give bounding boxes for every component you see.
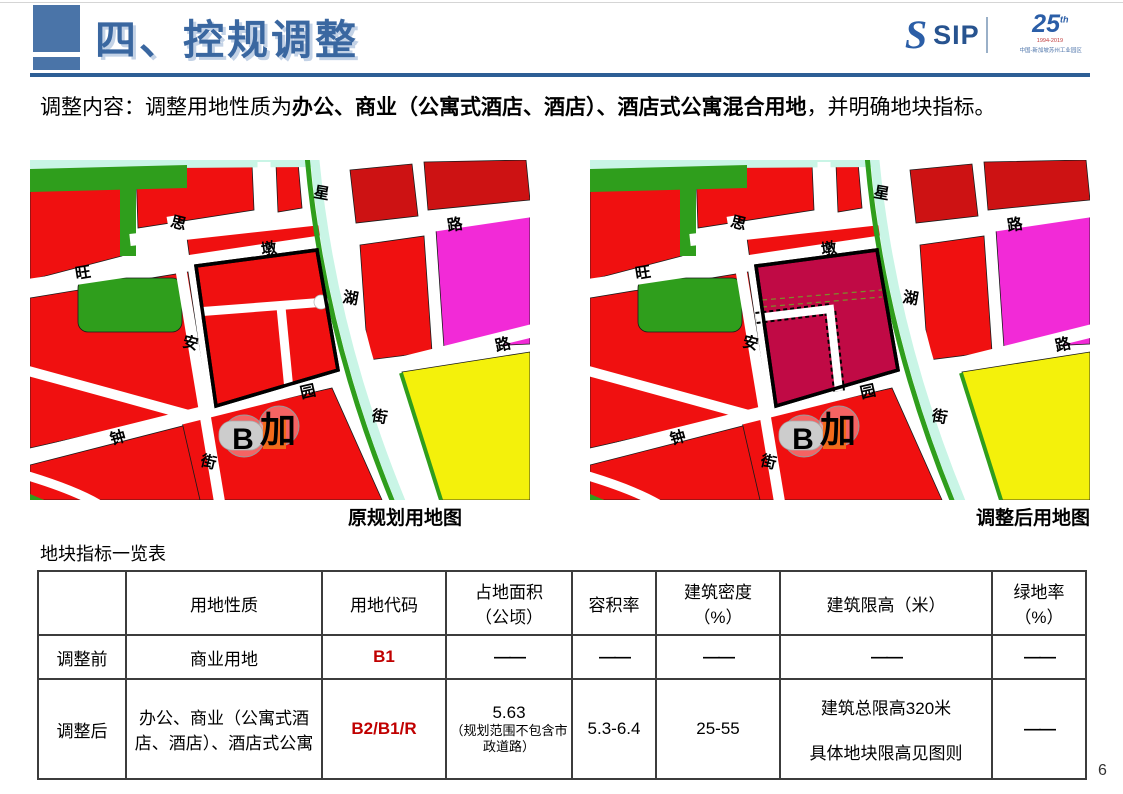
header-land-code: 用地代码 [322,571,446,635]
plot-indicator-table: 用地性质 用地代码 占地面积（公顷） 容积率 建筑密度（%） 建筑限高（米） 绿… [37,570,1087,780]
header-land-use: 用地性质 [126,571,322,635]
cell-density: 25-55 [656,679,780,779]
row-label: 调整后 [38,679,126,779]
title-decoration-bar [33,57,80,70]
anniversary-number: 25 [1032,10,1060,38]
header-far: 容积率 [572,571,656,635]
sip-logo-text: SIP [933,22,980,49]
logo-divider [986,17,988,53]
adjustment-description: 调整内容：调整用地性质为办公、商业（公寓式酒店、酒店）、酒店式公寓混合用地，并明… [40,92,1102,124]
cell-height: 建筑总限高320米具体地块限高见图则 [780,679,992,779]
adjusted-landuse-map-svg: B 加 思 安 街 旺 墩 路 星 湖 街 钟 园 路 [590,160,1090,500]
header-rule [30,73,1090,77]
header-empty [38,571,126,635]
gas-station-marker: 加 [260,409,296,450]
cell-density: —— [656,635,780,679]
slide: 四、控规调整 S SIP 25th 1994-2019 中国-新加坡苏州工业园区… [0,0,1123,794]
original-map-caption: 原规划用地图 [280,503,530,530]
road-label-xing: 星 [312,183,330,203]
title-decoration-square [33,5,80,52]
original-landuse-map: B 加 思 安 街 旺 墩 路 星 湖 街 钟 园 路 [30,160,530,500]
cell-height: —— [780,635,992,679]
cell-area: —— [446,635,572,679]
table-header-row: 用地性质 用地代码 占地面积（公顷） 容积率 建筑密度（%） 建筑限高（米） 绿… [38,571,1086,635]
sip-logo: S SIP 25th 1994-2019 中国-新加坡苏州工业园区 [905,12,1107,58]
road-label-xing: 星 [872,183,890,203]
cell-land-code: B2/B1/R [322,679,446,779]
cell-area: 5.63（规划范围不包含市政道路） [446,679,572,779]
table-caption: 地块指标一览表 [40,540,166,566]
cell-far: —— [572,635,656,679]
page-number: 6 [1098,762,1107,780]
sip-s-icon: S [905,15,927,55]
cell-nature: 办公、商业（公寓式酒店、酒店）、酒店式公寓 [126,679,322,779]
row-label: 调整前 [38,635,126,679]
cell-far: 5.3-6.4 [572,679,656,779]
original-landuse-map-svg: B 加 思 安 街 旺 墩 路 星 湖 街 钟 园 路 [30,160,530,500]
header-green-ratio: 绿地率（%） [992,571,1086,635]
bus-stop-marker: B [792,423,814,456]
intro-bold: 办公、商业（公寓式酒店、酒店）、酒店式公寓混合用地 [292,96,807,119]
intro-prefix: 调整内容：调整用地性质为 [40,96,292,119]
cell-green: —— [992,635,1086,679]
intro-suffix: ，并明确地块指标。 [807,96,996,119]
cell-nature: 商业用地 [126,635,322,679]
header-height-limit: 建筑限高（米） [780,571,992,635]
top-border-line [0,2,1123,3]
row-after-adjustment: 调整后 办公、商业（公寓式酒店、酒店）、酒店式公寓 B2/B1/R 5.63（规… [38,679,1086,779]
header-density: 建筑密度（%） [656,571,780,635]
bus-stop-marker: B [232,423,254,456]
page-title: 四、控规调整 [95,6,359,66]
adjusted-landuse-map: B 加 思 安 街 旺 墩 路 星 湖 街 钟 园 路 [590,160,1090,500]
gas-station-marker: 加 [820,409,856,450]
road-label-hu: 湖 [341,288,359,308]
area-note: （规划范围不包含市政道路） [450,723,568,756]
road-label-hu: 湖 [901,288,919,308]
anniversary-years: 1994-2019 [1037,38,1063,44]
cell-land-code: B1 [322,635,446,679]
adjusted-map-caption: 调整后用地图 [908,503,1123,530]
anniversary-sup: th [1060,15,1069,25]
row-before-adjustment: 调整前 商业用地 B1 —— —— —— —— —— [38,635,1086,679]
cell-green: —— [992,679,1086,779]
anniversary-org-text: 中国-新加坡苏州工业园区 [1019,48,1081,54]
header-area: 占地面积（公顷） [446,571,572,635]
anniversary-logo: 25th 1994-2019 中国-新加坡苏州工业园区 [994,12,1107,58]
